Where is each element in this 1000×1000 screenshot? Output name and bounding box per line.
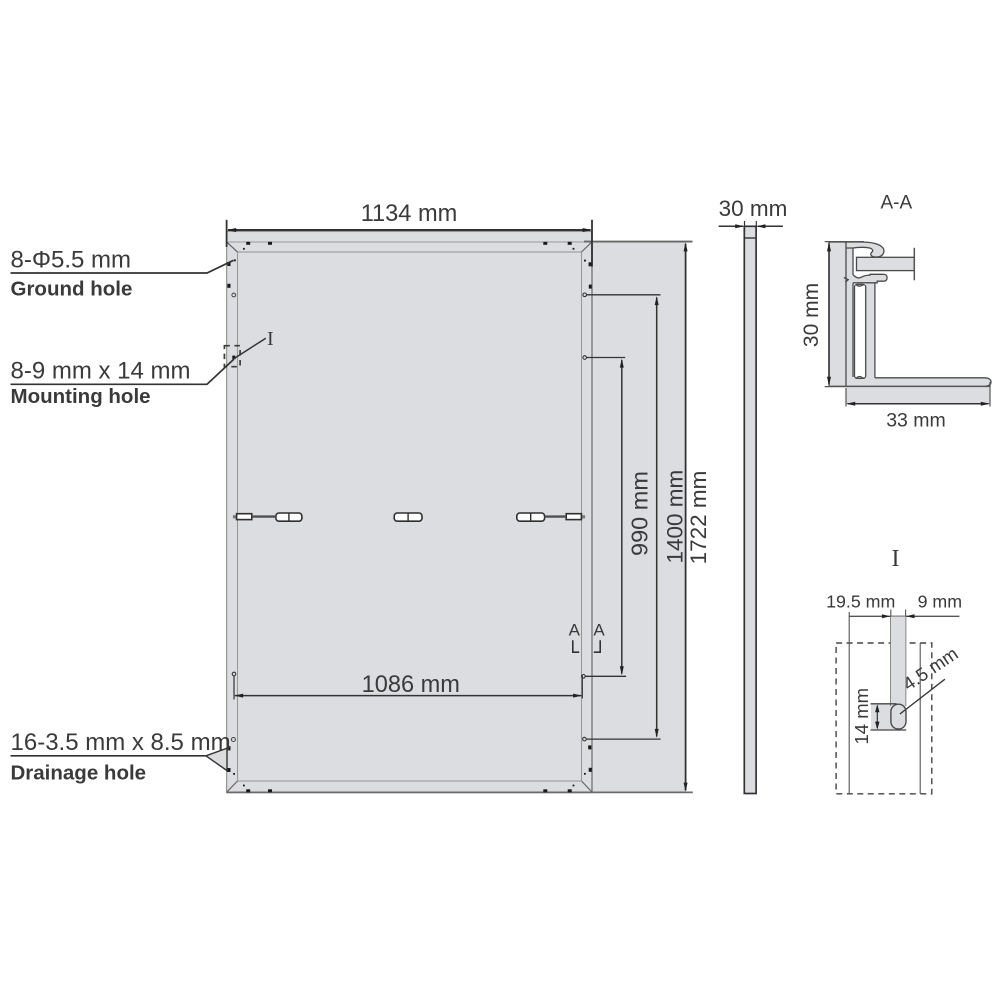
svg-text:1400 mm: 1400 mm [663,470,688,564]
svg-text:A: A [569,621,581,640]
svg-text:A-A: A-A [880,193,912,214]
svg-text:8-Φ5.5 mm: 8-Φ5.5 mm [11,247,132,274]
svg-text:19.5 mm: 19.5 mm [826,592,895,612]
svg-text:Mounting hole: Mounting hole [11,385,151,408]
svg-text:33 mm: 33 mm [886,410,946,432]
svg-text:14 mm: 14 mm [851,688,872,745]
svg-text:1722 mm: 1722 mm [686,471,711,565]
svg-text:1086 mm: 1086 mm [362,672,460,698]
svg-text:A: A [593,621,605,640]
svg-text:I: I [892,546,900,572]
svg-text:16-3.5 mm x 8.5 mm: 16-3.5 mm x 8.5 mm [11,729,231,756]
svg-text:30 mm: 30 mm [719,196,788,221]
svg-text:30 mm: 30 mm [800,283,823,347]
svg-text:I: I [267,328,274,350]
svg-text:Ground hole: Ground hole [11,278,133,301]
svg-text:8-9 mm x 14 mm: 8-9 mm x 14 mm [11,357,191,384]
svg-text:9 mm: 9 mm [918,592,962,612]
svg-text:Drainage hole: Drainage hole [11,762,147,785]
svg-text:1134 mm: 1134 mm [361,201,458,227]
svg-text:4.5 mm: 4.5 mm [899,643,962,695]
svg-text:990 mm: 990 mm [626,471,652,556]
